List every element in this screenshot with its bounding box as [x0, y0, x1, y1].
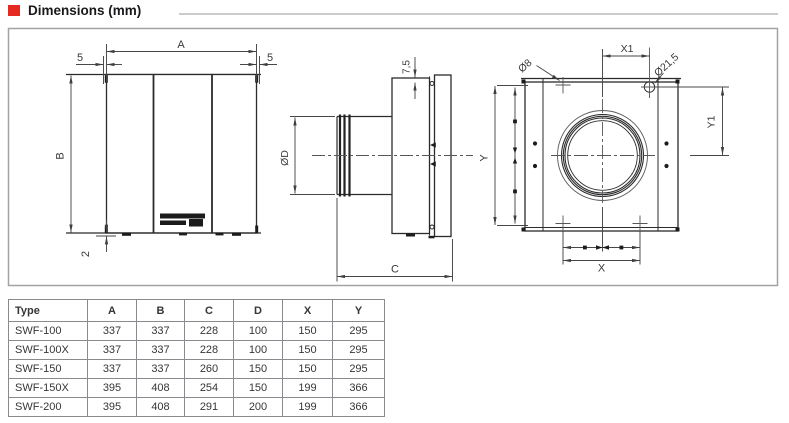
value-cell: 337: [137, 341, 185, 360]
dim-label-7-5: 7,5: [402, 60, 413, 74]
dimensions-table-head: TypeABCDXY: [9, 300, 385, 322]
type-cell: SWF-100: [9, 322, 88, 341]
value-cell: 395: [88, 379, 137, 398]
value-cell: 100: [234, 341, 283, 360]
dim-label-5-right: 5: [267, 52, 273, 64]
value-cell: 295: [333, 341, 385, 360]
dimensions-table-body: SWF-100337337228100150295SWF-100X3373372…: [9, 322, 385, 417]
value-cell: 337: [137, 322, 185, 341]
value-cell: 337: [88, 341, 137, 360]
value-cell: 150: [234, 360, 283, 379]
value-cell: 295: [333, 322, 385, 341]
value-cell: 408: [137, 398, 185, 417]
table-row: SWF-150337337260150150295: [9, 360, 385, 379]
value-cell: 254: [185, 379, 234, 398]
value-cell: 291: [185, 398, 234, 417]
section-header: Dimensions (mm): [0, 0, 789, 24]
column-header-b: B: [137, 300, 185, 322]
type-cell: SWF-150: [9, 360, 88, 379]
type-cell: SWF-100X: [9, 341, 88, 360]
value-cell: 260: [185, 360, 234, 379]
dim-label-y1: Y1: [706, 115, 718, 128]
dim-label-c: C: [391, 264, 399, 276]
value-cell: 150: [234, 379, 283, 398]
dim-label-diameter-d: ØD: [279, 150, 291, 166]
dim-label-5-left: 5: [77, 52, 83, 64]
header-row: TypeABCDXY: [9, 300, 385, 322]
dim-label-b: B: [55, 152, 67, 159]
dim-label-y: Y: [479, 154, 491, 162]
dim-label-x: X: [598, 263, 606, 275]
table-row: SWF-200395408291200199366: [9, 398, 385, 417]
value-cell: 150: [283, 360, 333, 379]
value-cell: 337: [88, 322, 137, 341]
column-header-a: A: [88, 300, 137, 322]
value-cell: 408: [137, 379, 185, 398]
dim-label-2: 2: [80, 251, 92, 257]
red-bullet-icon: [8, 5, 20, 16]
column-header-d: D: [234, 300, 283, 322]
value-cell: 366: [333, 398, 385, 417]
value-cell: 337: [137, 360, 185, 379]
type-cell: SWF-150X: [9, 379, 88, 398]
header-rule: [179, 13, 778, 15]
column-header-y: Y: [333, 300, 385, 322]
column-header-x: X: [283, 300, 333, 322]
value-cell: 199: [283, 398, 333, 417]
value-cell: 200: [234, 398, 283, 417]
value-cell: 228: [185, 322, 234, 341]
table-row: SWF-100X337337228100150295: [9, 341, 385, 360]
value-cell: 337: [88, 360, 137, 379]
dim-label-x1: X1: [621, 43, 634, 55]
technical-drawing: A 5 5 B 2: [0, 0, 789, 296]
dimensions-table: TypeABCDXY SWF-100337337228100150295SWF-…: [8, 299, 385, 417]
value-cell: 150: [283, 322, 333, 341]
back-view: [521, 79, 681, 232]
value-cell: 100: [234, 322, 283, 341]
value-cell: 395: [88, 398, 137, 417]
column-header-c: C: [185, 300, 234, 322]
dim-label-a: A: [177, 39, 185, 51]
column-header-type: Type: [9, 300, 88, 322]
value-cell: 150: [283, 341, 333, 360]
value-cell: 199: [283, 379, 333, 398]
section-title: Dimensions (mm): [28, 0, 141, 22]
value-cell: 366: [333, 379, 385, 398]
type-cell: SWF-200: [9, 398, 88, 417]
datasheet-page: A 5 5 B 2: [0, 0, 789, 423]
table-row: SWF-150X395408254150199366: [9, 379, 385, 398]
table-row: SWF-100337337228100150295: [9, 322, 385, 341]
value-cell: 295: [333, 360, 385, 379]
value-cell: 228: [185, 341, 234, 360]
